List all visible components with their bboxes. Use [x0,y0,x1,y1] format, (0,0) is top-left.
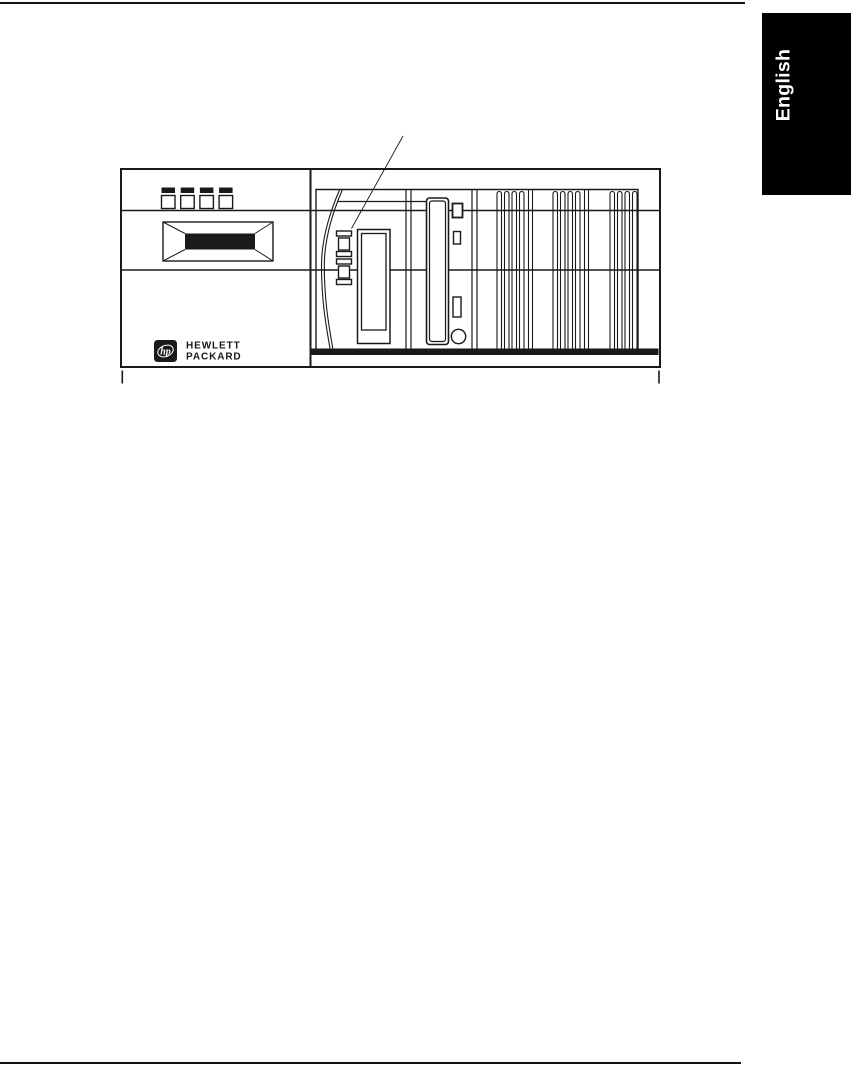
lcd-bevel-line [255,250,273,262]
indicator-bar [181,188,195,194]
control-panel-buttons [162,188,233,209]
drive-busy-light [454,232,461,245]
lcd-display [163,222,273,261]
tape-bay-outer [358,230,391,344]
lcd-bevel-line [163,250,185,262]
brand-line1: HEWLETT [186,341,241,352]
footer-rule [0,1062,741,1064]
vent-grille-group-2 [553,190,589,349]
panel-button [162,196,176,209]
indicator-bar [162,188,176,194]
eject-buttons [337,231,352,285]
lcd-bevel-line [255,222,273,234]
drive-led-indicator [453,204,463,218]
panel-button [181,196,195,209]
manual-page: English [0,0,853,1075]
eject-button-body [339,238,350,250]
panel-button [219,196,233,209]
lcd-screen [185,234,255,250]
hp-logo: hp HEWLETT PACKARD [154,340,242,363]
drive-eject-slot [453,297,461,317]
brand-line2: PACKARD [186,352,242,363]
figure-root: hp HEWLETT PACKARD [121,136,660,384]
eject-button-cap [337,252,352,257]
vent-grille-group-1 [497,190,533,349]
base-bar [312,349,659,356]
drive-round-button [451,329,465,343]
eject-button-cap [337,259,352,264]
server-front-panel-figure: hp HEWLETT PACKARD [0,0,853,1075]
eject-button-lower [337,259,352,285]
panel-button [200,196,214,209]
indicator-bar [219,188,233,194]
indicator-bar [200,188,214,194]
hp-logo-text: hp [160,347,171,358]
eject-button-body [339,266,350,278]
cd-rom-drive [427,198,466,345]
eject-button-cap [337,231,352,236]
eject-button-cap [337,280,352,285]
callout-line [352,136,404,229]
eject-button-upper [337,231,352,257]
lcd-bevel-line [163,222,185,234]
tape-drive-bay [358,230,391,344]
vent-grilles [497,190,637,349]
